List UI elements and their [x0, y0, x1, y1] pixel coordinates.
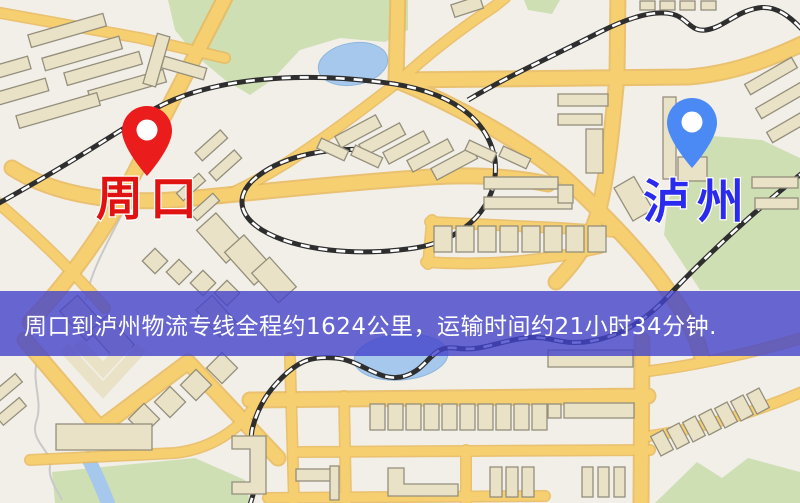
route-info-text: 周口到泸州物流专线全程约1624公里，运输时间约21小时34分钟.	[24, 307, 717, 341]
destination-pin-hole	[682, 112, 703, 133]
origin-pin-hole	[137, 120, 158, 141]
destination-label: 泸州	[643, 175, 751, 230]
map-canvas[interactable]: 周口 泸州	[0, 0, 800, 503]
route-info-banner: 周口到泸州物流专线全程约1624公里，运输时间约21小时34分钟.	[0, 291, 800, 356]
origin-label: 周口	[96, 172, 204, 227]
logistics-route-map: 周口 泸州 周口到泸州物流专线全程约1624公里，运输时间约21小时34分钟.	[0, 0, 800, 503]
